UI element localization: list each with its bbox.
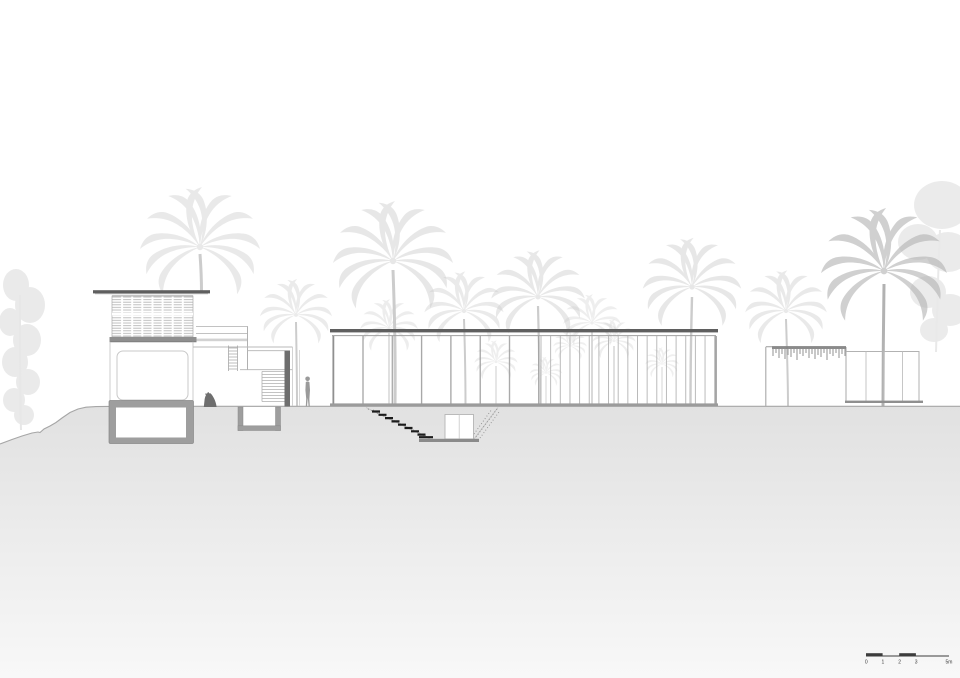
ground-fill <box>0 406 960 678</box>
architectural-section-drawing: 0 1 2 3 5m <box>0 0 960 678</box>
scale-bar-segment-1 <box>866 653 883 656</box>
service-pit <box>238 407 281 431</box>
foundation-slab <box>419 439 479 442</box>
thatch-band <box>772 346 846 349</box>
terrace-slab <box>197 339 249 342</box>
pavilion-base-band <box>330 403 718 406</box>
scale-label-5m: 5m <box>946 660 953 666</box>
basement-door <box>445 415 474 440</box>
plinth-slab <box>845 401 923 403</box>
scale-label-0: 0 <box>865 660 868 666</box>
left-roof-slab <box>93 290 210 293</box>
section-drawing-svg: 0 1 2 3 5m <box>0 0 960 678</box>
floor-slab <box>110 337 197 342</box>
pool-section <box>109 401 194 444</box>
terrain <box>0 406 960 678</box>
lower-wall-backing <box>109 341 194 401</box>
louver-screen <box>112 296 193 337</box>
pavilion-roof-slab <box>330 329 718 332</box>
scale-bar-segment-2 <box>899 653 916 656</box>
scale-label-2: 2 <box>898 660 901 666</box>
pavilion-columns <box>333 336 717 406</box>
scale-label-3: 3 <box>915 660 918 666</box>
scale-label-1: 1 <box>882 660 885 666</box>
stair-post <box>285 351 291 407</box>
